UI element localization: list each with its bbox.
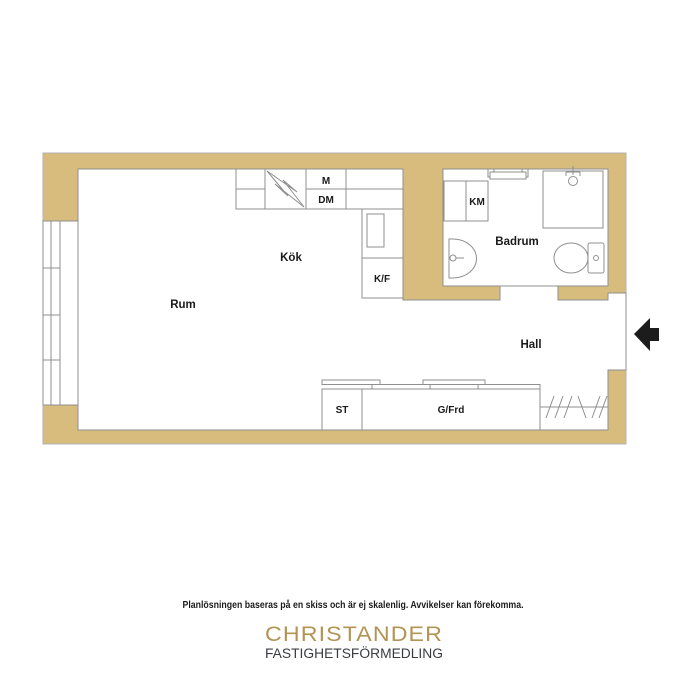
toilet-icon [554,243,604,273]
label-wardrobe: G/Frd [438,405,465,416]
floorplan-page: Rum Kök Badrum Hall M DM K/F KM ST G/Frd… [0,0,700,700]
floorplan-svg: Rum Kök Badrum Hall M DM K/F KM ST G/Frd… [0,0,700,700]
label-microwave: M [322,176,330,187]
label-washing-machine: KM [469,197,485,208]
room-label-rum: Rum [170,299,196,311]
room-label-kok: Kök [280,252,302,264]
label-dishwasher: DM [318,195,334,206]
window [43,221,78,405]
label-fridge-freezer: K/F [374,274,390,285]
label-cleaning-closet: ST [336,405,349,416]
room-label-badrum: Badrum [495,236,538,248]
disclaimer-text: Planlösningen baseras på en skiss och är… [183,599,524,611]
brand-subtitle: FASTIGHETSFÖRMEDLING [265,646,443,661]
entrance-arrow-icon [634,318,659,351]
brand-name: CHRISTANDER [265,623,443,646]
room-label-hall: Hall [520,339,541,351]
